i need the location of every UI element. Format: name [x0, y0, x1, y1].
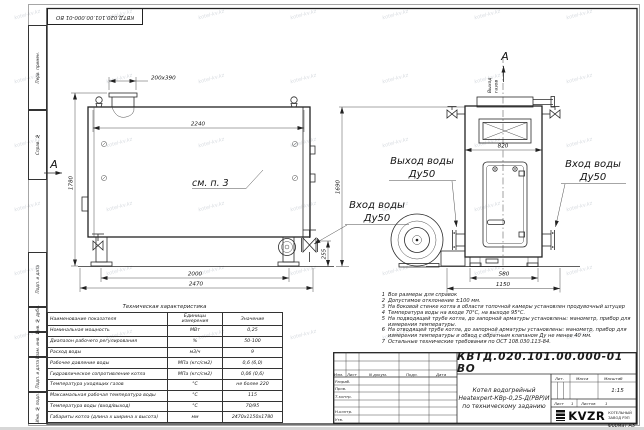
spec-row: Расход водым3/ч9	[48, 347, 283, 358]
margin-label: Перв. примен.	[35, 52, 40, 83]
margin-cell-perv-primen: Перв. примен.	[28, 25, 47, 110]
company-logo-cell: KVZR КОТЕЛЬНЫЙ ЗАВОД РЭП	[551, 407, 637, 424]
spec-cell-unit: °С	[168, 379, 223, 390]
company-name: КОТЕЛЬНЫЙ ЗАВОД РЭП	[608, 411, 632, 420]
dim-stub: 200х390	[151, 76, 176, 82]
blowdown-stub	[82, 197, 88, 211]
product-name-line3: по техническому заданию	[462, 403, 545, 411]
tb-row-tcontrol: Т.контр.	[335, 394, 352, 399]
spec-header-unit-line2: измерения	[182, 319, 209, 324]
pipe-labels: Выход воды Ду50 Вход воды Ду50 Вход воды…	[314, 156, 626, 244]
margin-label: Справ. №	[35, 134, 40, 155]
tb-scale-value: 1:15	[598, 382, 637, 399]
note-row: 7Остальные технические требования по ОСТ…	[379, 340, 637, 346]
spec-header-value: Значение	[223, 313, 283, 326]
margin-cell-podp-data-1: Подп. и дата	[28, 252, 47, 307]
safety-valve-right	[542, 107, 560, 119]
spec-cell-name: Расход воды	[48, 347, 168, 358]
gas-out-line2: газов	[495, 80, 500, 93]
spec-cell-value: 70/95	[223, 401, 283, 412]
dim-front-1690: 1690	[336, 179, 342, 194]
tb-sheets-label: Листов	[581, 401, 596, 406]
top-stamp: КВТД.020.101.00.000-01 ВО	[47, 8, 143, 25]
furnace-door	[483, 162, 527, 247]
spec-cell-unit: °С	[168, 390, 223, 401]
water-outlet-nozzle	[453, 230, 466, 250]
margin-label: Подп. и дата	[35, 265, 40, 294]
dim-base-580: 580	[499, 272, 510, 278]
product-name: Котел водогрейный Heatexpert-КВр-0,25-Д(…	[457, 374, 551, 424]
spec-cell-unit: МПа (кгс/см2)	[168, 369, 223, 380]
spec-cell-name: Номинальная мощность	[48, 326, 168, 337]
spec-row: Гидравлическое сопротивление котлаМПа (к…	[48, 369, 283, 380]
margin-cell-inv-podl: Инв. № подл.	[28, 392, 47, 424]
technical-notes: 1Все размеры для справок 2Допустимое отк…	[379, 293, 637, 346]
flue-stub	[109, 93, 137, 117]
spec-cell-value: не более 220	[223, 379, 283, 390]
tb-sheet-label: Лист	[554, 401, 564, 406]
spec-cell-name: Габариты котла (длина х ширина х высота)	[48, 412, 168, 423]
inspection-hatch	[479, 119, 531, 143]
spec-header-row: Наименование показателя Единицыизмерения…	[48, 313, 283, 326]
support-legs	[91, 237, 299, 266]
dim-legs-2000: 2000	[188, 272, 203, 278]
water-out-label: Выход воды	[390, 156, 454, 167]
spec-header-name: Наименование показателя	[48, 313, 168, 326]
spec-cell-name: Температура воды (вход/выход)	[48, 401, 168, 412]
tb-row-ncontrol: Н.контр.	[335, 409, 352, 414]
margin-cell-vzam-inv: Взам. инв. №	[28, 332, 47, 357]
margin-label: Инв. № подл.	[35, 393, 40, 423]
safety-valve-left	[447, 107, 465, 119]
drawing-sheet: kotel-kv.kzkotel-kv.kzkotel-kv.kzkotel-k…	[0, 0, 644, 430]
dim-length-2470: 2470	[189, 282, 204, 288]
margin-label: Взам. инв. №	[35, 330, 40, 359]
note-number: 7	[379, 340, 388, 346]
spec-cell-name: Диапазон рабочего регулирования	[48, 336, 168, 347]
water-out-dn: Ду50	[408, 169, 435, 180]
document-number: КВТД.020.101.00.000-01 ВО	[457, 352, 637, 374]
lifting-lug-left	[96, 97, 102, 107]
spec-cell-name: Гидравлическое сопротивление котла	[48, 369, 168, 380]
tb-mass-label: Масса	[576, 376, 588, 381]
draft-fan	[391, 214, 465, 267]
base-frame	[470, 257, 538, 267]
inlet-flange-circles	[279, 239, 296, 256]
note-text: Остальные технические требования по ОСТ …	[388, 340, 551, 346]
inlet-valve	[302, 230, 318, 262]
dim-width-2240: 2240	[191, 122, 206, 128]
flue-pipe-flange	[551, 97, 555, 108]
spec-row: Максимальная рабочая температура воды°С1…	[48, 390, 283, 401]
spec-cell-value: 0,06 (0,6)	[223, 369, 283, 380]
side-tab-2	[310, 174, 315, 182]
water-inlet-nozzle	[542, 230, 555, 250]
tb-sheets-value: 1	[605, 401, 607, 406]
door-handle	[488, 220, 505, 225]
tb-row-checker: Пров.	[335, 386, 346, 391]
title-block: Изм. Лист N докум. Подп. Дата Разраб. Пр…	[333, 352, 637, 424]
section-label-a-side: А	[49, 158, 58, 171]
top-stamp-number: КВТД.020.101.00.000-01 ВО	[56, 14, 134, 20]
tb-row-developer: Разраб.	[335, 379, 350, 384]
spec-cell-name: Рабочее давление воды	[48, 358, 168, 369]
water-in-left-dn: Ду50	[363, 213, 390, 224]
spec-row: Номинальная мощностьМВт0,25	[48, 326, 283, 337]
kvzr-logo-text: KVZR	[568, 409, 605, 423]
tb-col-izm: Изм.	[334, 372, 343, 377]
spec-cell-unit: м3/ч	[168, 347, 223, 358]
product-name-line2: Heatexpert-КВр-0,25-Д(РВР)И	[458, 395, 549, 403]
kvzr-logo-icon	[556, 410, 565, 421]
lifting-lug-right	[291, 97, 297, 107]
front-view-dimensions: 820 580 1150	[447, 144, 560, 293]
water-in-left-label: Вход воды	[349, 200, 405, 211]
spec-cell-name: Максимальная рабочая температура воды	[48, 390, 168, 401]
margin-cell-podp-data-2: Подп. и дата	[28, 357, 47, 392]
margin-cell-sprav: Справ. №	[28, 110, 47, 180]
front-body	[465, 106, 542, 257]
tb-col-doc: N докум.	[369, 372, 387, 377]
margin-cell-inv-dubl: Инв. № дубл.	[28, 307, 47, 332]
dim-valve-255: 255	[322, 248, 328, 259]
anchor-marks	[101, 141, 297, 180]
see-note-label: см. п. 3	[192, 178, 229, 189]
spec-table: Наименование показателя Единицыизмерения…	[47, 312, 283, 423]
spec-row: Температура уходящих газов°Сне более 220	[48, 379, 283, 390]
company-name-line2: ЗАВОД РЭП	[608, 416, 632, 420]
spec-cell-name: Температура уходящих газов	[48, 379, 168, 390]
tb-col-list: Лист	[347, 372, 357, 377]
spec-cell-unit: %	[168, 336, 223, 347]
spec-cell-value: 50-100	[223, 336, 283, 347]
product-name-line1: Котел водогрейный	[473, 387, 536, 395]
dim-top-820: 820	[498, 144, 509, 150]
spec-row: Габариты котла (длина х ширина х высота)…	[48, 412, 283, 423]
margin-label: Подп. и дата	[35, 360, 40, 389]
spec-cell-value: 9	[223, 347, 283, 358]
tb-col-date: Дата	[436, 372, 446, 377]
spec-row: Температура воды (вход/выход)°С70/95	[48, 401, 283, 412]
spec-cell-unit: МВт	[168, 326, 223, 337]
water-in-right-label: Вход воды	[565, 159, 621, 170]
tb-sheet-value: 1	[571, 401, 573, 406]
side-tab-1	[310, 146, 315, 154]
spec-cell-value: 2470х1150х1780	[223, 412, 283, 423]
spec-header-unit: Единицыизмерения	[168, 313, 223, 326]
spec-cell-value: 115	[223, 390, 283, 401]
spec-cell-value: 0,6 (6,0)	[223, 358, 283, 369]
spec-table-title: Техническая характеристика	[47, 304, 282, 310]
dim-width-1150: 1150	[496, 282, 511, 288]
spec-cell-unit: МПа (кгс/см2)	[168, 358, 223, 369]
spec-cell-value: 0,25	[223, 326, 283, 337]
spec-row: Рабочее давление водыМПа (кгс/см2)0,6 (6…	[48, 358, 283, 369]
spec-row: Диапазон рабочего регулирования%50-100	[48, 336, 283, 347]
water-in-right-dn: Ду50	[579, 172, 606, 183]
tb-row-approver: Утв.	[335, 417, 343, 422]
spec-cell-unit: мм	[168, 412, 223, 423]
tb-scale-label: Масштаб	[604, 376, 623, 381]
gas-out-line1: Выход	[487, 78, 493, 93]
spec-cell-unit: °С	[168, 401, 223, 412]
tb-col-sign: Подп.	[406, 372, 418, 377]
tb-lit-label: Лит.	[555, 376, 564, 381]
view-label-a: А	[500, 50, 509, 63]
dim-height-1780: 1780	[69, 175, 75, 190]
